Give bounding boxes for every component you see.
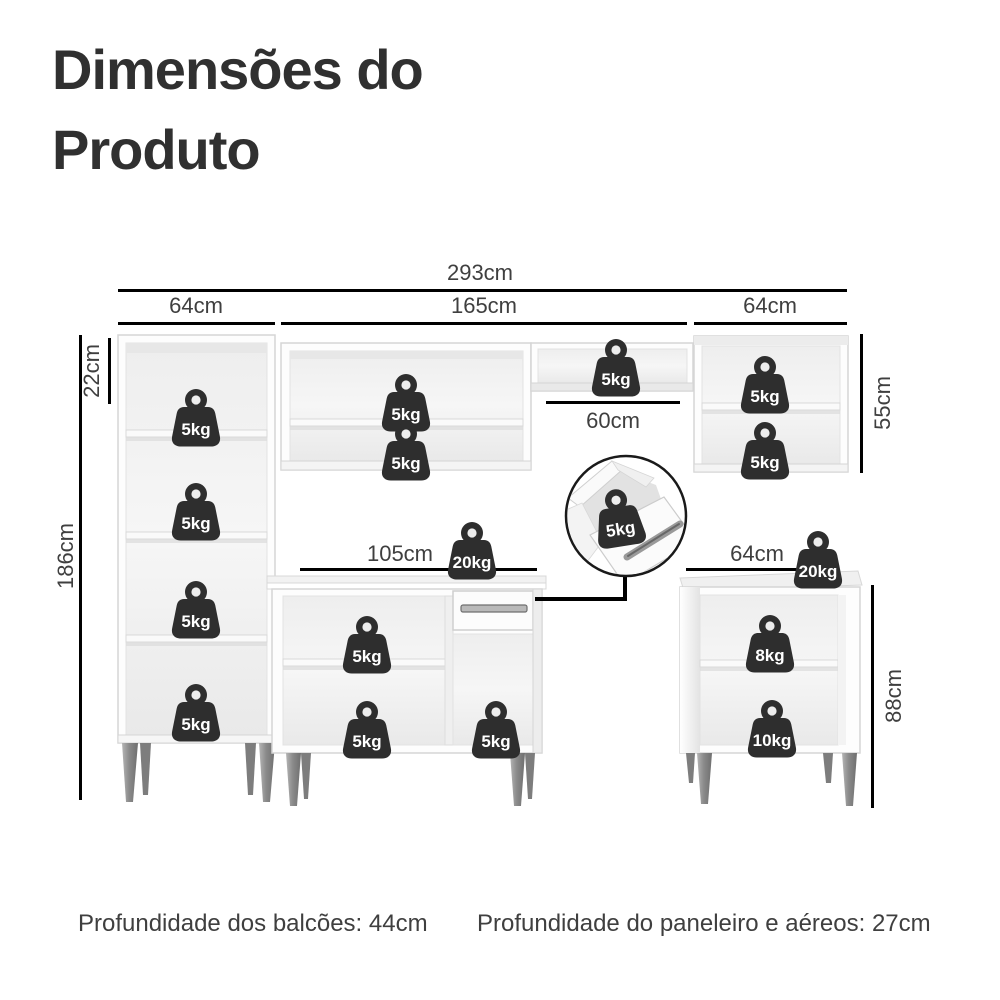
weight-badge-label: 5kg (339, 641, 395, 673)
weight-badge-label: 8kg (742, 640, 798, 672)
dim-line-aereo-right-height (860, 334, 863, 473)
weight-badge-paneleiro-1: 5kg (168, 388, 224, 450)
weight-badge-label: 5kg (168, 709, 224, 741)
dim-label-total-width: 293cm (425, 260, 535, 286)
dim-label-paneleiro-width: 64cm (146, 293, 246, 319)
weight-badge-label: 5kg (378, 448, 434, 480)
dim-line-top-gap-height (108, 338, 111, 404)
dim-label-niche-width: 60cm (558, 408, 668, 434)
dim-line-niche-width (546, 401, 680, 404)
dim-label-aereo-right-height: 55cm (870, 368, 896, 438)
weight-badge-label: 5kg (168, 606, 224, 638)
weight-badge-paneleiro-2: 5kg (168, 482, 224, 544)
weight-badge-balcao-middle-2: 5kg (339, 700, 395, 762)
weight-badge-label: 5kg (468, 726, 524, 758)
weight-badge-label: 10kg (744, 725, 800, 757)
dim-line-balcao-middle-width (300, 568, 537, 571)
weight-badge-label: 5kg (168, 508, 224, 540)
weight-badge-aereo-right-2: 5kg (737, 421, 793, 483)
dimension-annotations: 293cm 64cm 165cm 64cm 22cm 186cm 55cm 60… (0, 0, 1000, 1000)
weight-badge-label: 5kg (737, 381, 793, 413)
weight-badge-balcao-right-2: 10kg (744, 699, 800, 761)
weight-badge-balcao-middle-right: 5kg (468, 700, 524, 762)
weight-badge-balcao-right-1: 8kg (742, 614, 798, 676)
weight-badge-paneleiro-3: 5kg (168, 580, 224, 642)
weight-badge-label: 5kg (339, 726, 395, 758)
weight-badge-paneleiro-4: 5kg (168, 683, 224, 745)
weight-badge-label: 5kg (588, 364, 644, 396)
dim-label-balcao-right-height: 88cm (881, 661, 907, 731)
weight-badge-label: 20kg (444, 547, 500, 579)
dim-line-aereo-middle-width (281, 322, 687, 325)
dim-label-paneleiro-height: 186cm (53, 521, 79, 591)
dim-label-aereo-right-width: 64cm (720, 293, 820, 319)
dim-label-aereo-middle-width: 165cm (429, 293, 539, 319)
weight-badge-aereo-bridge: 5kg (588, 338, 644, 400)
weight-badge-balcao-middle-top: 20kg (444, 521, 500, 583)
dim-line-paneleiro-height (79, 335, 82, 800)
dim-line-aereo-right-width (694, 322, 847, 325)
product-dimensions-diagram: Dimensões do Produto 293cm 64cm 165cm 64… (0, 0, 1000, 1000)
weight-badge-label: 5kg (168, 414, 224, 446)
weight-badge-label: 5kg (737, 447, 793, 479)
dim-line-total-width (118, 289, 847, 292)
dim-line-paneleiro-width (118, 322, 275, 325)
weight-badge-balcao-middle-1: 5kg (339, 615, 395, 677)
dim-label-top-gap-height: 22cm (79, 336, 105, 406)
dim-line-balcao-right-height (871, 585, 874, 808)
weight-badge-balcao-right-top: 20kg (790, 530, 846, 592)
weight-badge-aereo-right-1: 5kg (737, 355, 793, 417)
weight-badge-label: 20kg (790, 556, 846, 588)
weight-badge-drawer-detail: 5kg (586, 484, 651, 554)
weight-badge-aereo-middle-2: 5kg (378, 422, 434, 484)
